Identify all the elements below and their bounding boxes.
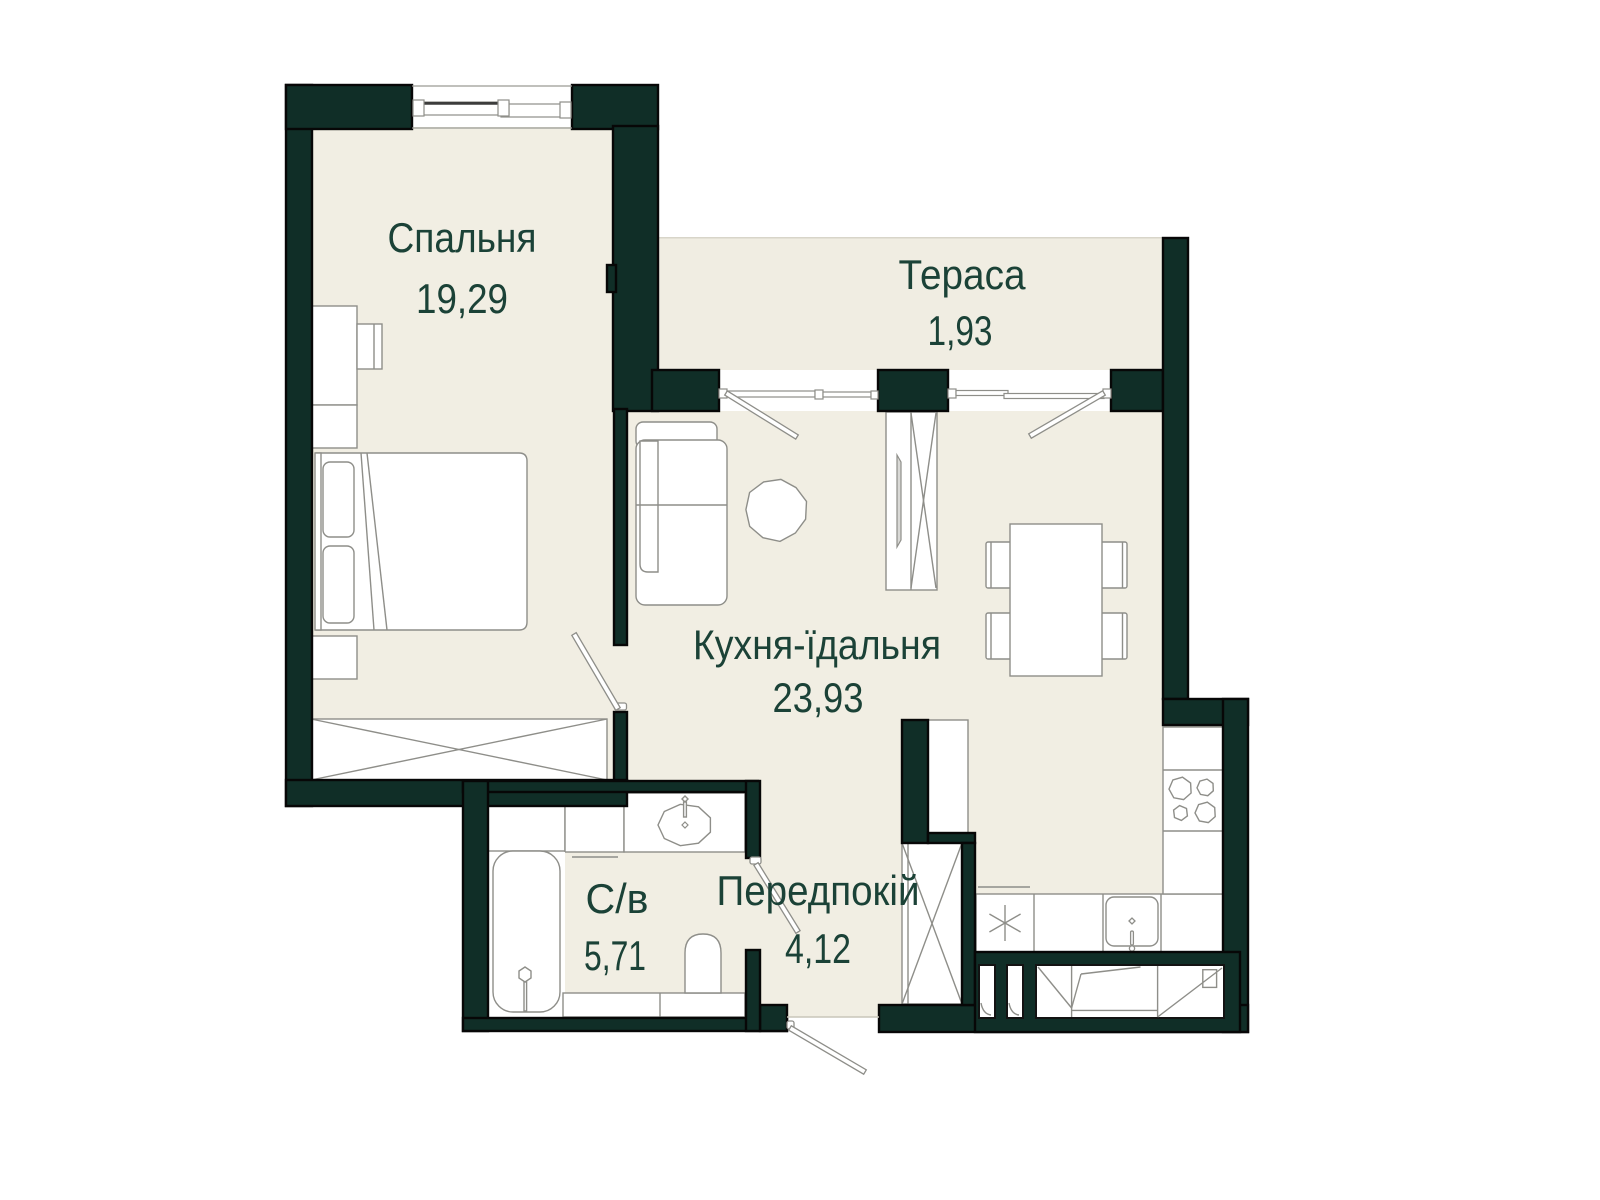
svg-text:Тераса: Тераса — [899, 251, 1027, 298]
svg-text:С/в: С/в — [586, 875, 649, 922]
svg-text:Передпокій: Передпокій — [717, 867, 920, 914]
svg-text:23,93: 23,93 — [773, 674, 864, 721]
svg-text:Спальня: Спальня — [388, 214, 537, 261]
svg-text:5,71: 5,71 — [584, 932, 646, 979]
svg-text:4,12: 4,12 — [785, 925, 851, 972]
svg-text:1,93: 1,93 — [928, 307, 993, 354]
svg-text:Кухня-їдальня: Кухня-їдальня — [693, 621, 941, 668]
svg-text:19,29: 19,29 — [416, 275, 508, 322]
